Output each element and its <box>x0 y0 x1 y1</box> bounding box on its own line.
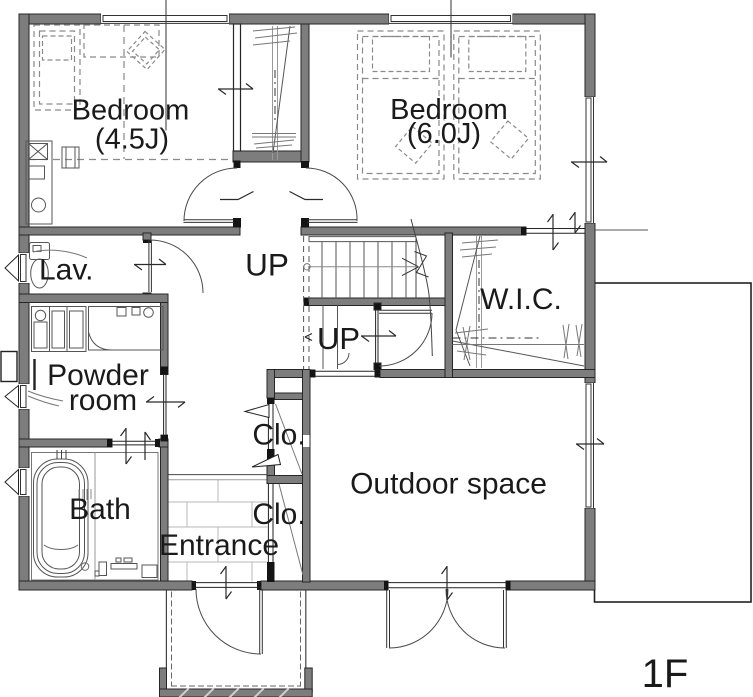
svg-text:(4.5J): (4.5J) <box>95 124 169 156</box>
svg-text:Bath: Bath <box>69 493 131 526</box>
svg-text:Bedroom: Bedroom <box>72 95 190 127</box>
svg-text:Clo.: Clo. <box>252 498 305 531</box>
svg-text:UP: UP <box>245 247 289 283</box>
svg-text:Clo.: Clo. <box>252 419 305 452</box>
svg-text:Entrance: Entrance <box>159 529 279 562</box>
svg-text:Outdoor space: Outdoor space <box>350 468 547 501</box>
svg-text:UP: UP <box>317 321 360 356</box>
svg-text:W.I.C.: W.I.C. <box>480 283 562 316</box>
svg-text:Lav.: Lav. <box>39 254 93 287</box>
svg-text:(6.0J): (6.0J) <box>407 118 481 150</box>
svg-text:1F: 1F <box>642 652 689 696</box>
svg-text:room: room <box>69 384 137 417</box>
